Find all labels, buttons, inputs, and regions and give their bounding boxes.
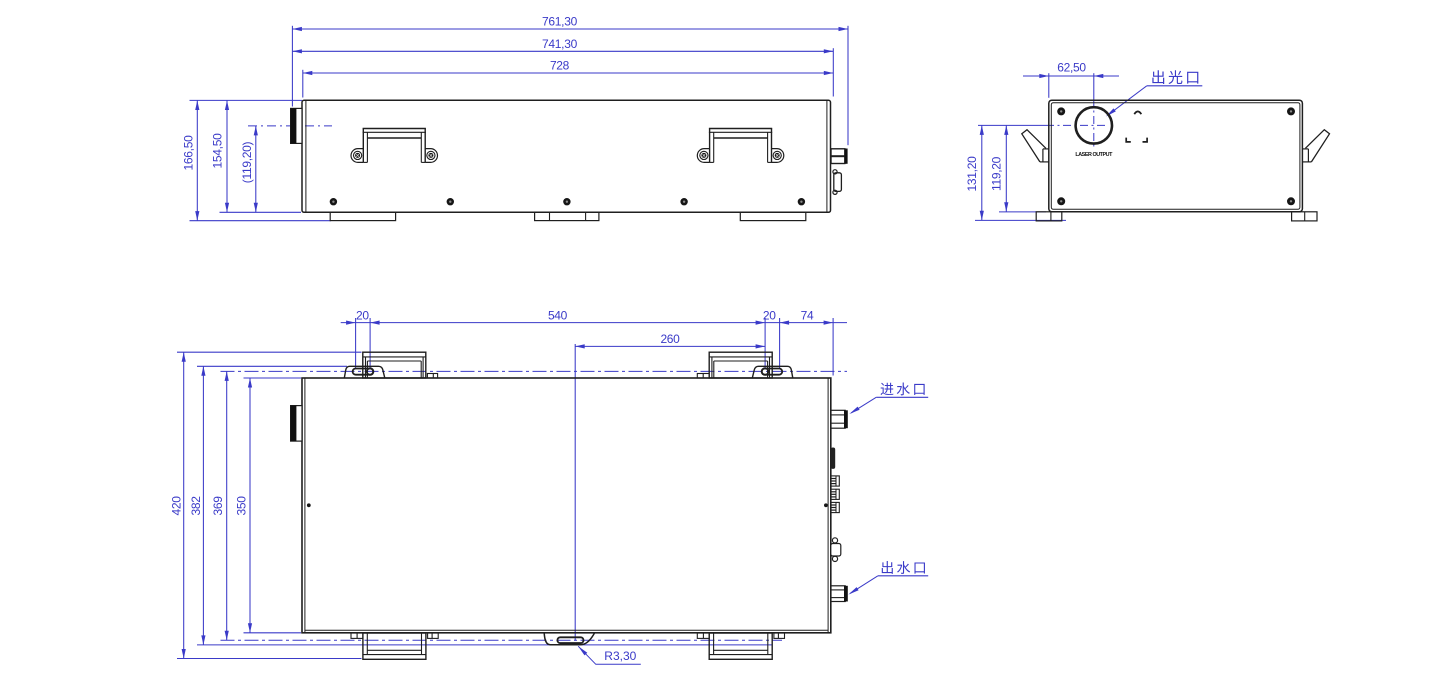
svg-text:119,20: 119,20 (990, 156, 1004, 191)
svg-text:741,30: 741,30 (542, 37, 578, 51)
svg-text:LASER OUTPUT: LASER OUTPUT (1075, 152, 1113, 158)
svg-text:350: 350 (235, 496, 249, 516)
svg-text:382: 382 (189, 496, 203, 516)
svg-text:20: 20 (763, 308, 776, 322)
svg-text:131,20: 131,20 (965, 156, 979, 192)
svg-text:728: 728 (550, 59, 570, 73)
svg-text:260: 260 (660, 332, 680, 346)
svg-text:761,30: 761,30 (542, 15, 578, 29)
svg-text:62,50: 62,50 (1057, 60, 1086, 74)
svg-text:154,50: 154,50 (211, 133, 225, 169)
svg-text:20: 20 (356, 308, 369, 322)
svg-text:540: 540 (548, 308, 568, 322)
svg-text:166,50: 166,50 (182, 135, 196, 171)
svg-text:420: 420 (169, 496, 183, 516)
svg-text:74: 74 (801, 308, 814, 322)
svg-text:369: 369 (211, 496, 225, 516)
svg-text:(119,20): (119,20) (240, 141, 254, 183)
svg-text:R3,30: R3,30 (604, 649, 636, 663)
